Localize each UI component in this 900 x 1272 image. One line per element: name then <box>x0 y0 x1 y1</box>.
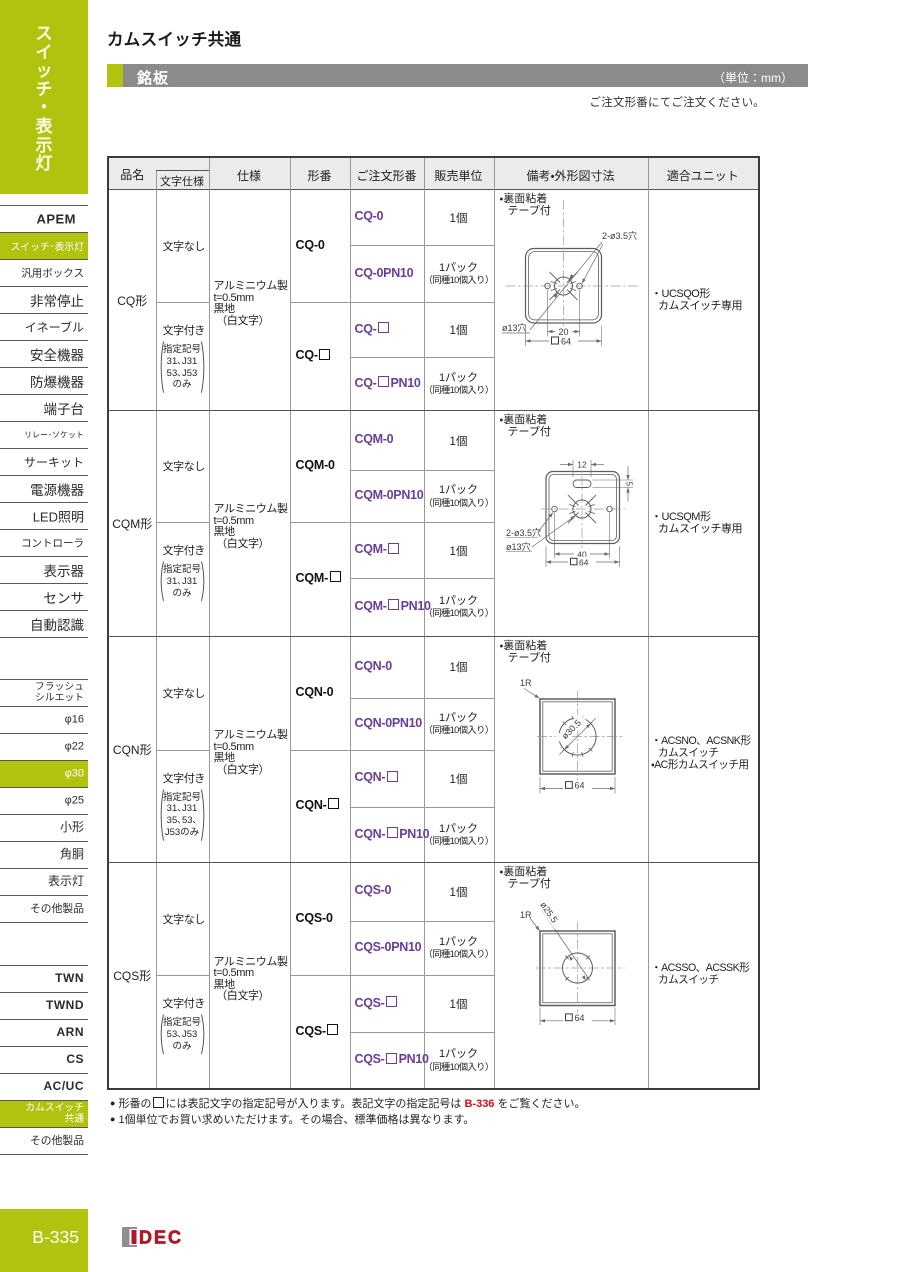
svg-text:64: 64 <box>574 1013 584 1023</box>
svg-text:DEC: DEC <box>139 1228 183 1248</box>
svg-text:12: 12 <box>577 460 587 470</box>
svg-text:2-ø3.5穴: 2-ø3.5穴 <box>602 231 637 241</box>
svg-text:1R: 1R <box>520 678 532 688</box>
svg-text:64: 64 <box>561 337 571 347</box>
svg-text:64: 64 <box>574 780 584 790</box>
svg-text:64: 64 <box>579 557 589 567</box>
svg-text:2-ø3.5穴: 2-ø3.5穴 <box>506 528 541 538</box>
svg-text:ø13穴: ø13穴 <box>502 323 527 333</box>
svg-text:ø13穴: ø13穴 <box>506 542 531 552</box>
svg-text:5: 5 <box>624 482 633 487</box>
svg-text:ø25.5: ø25.5 <box>538 900 559 925</box>
